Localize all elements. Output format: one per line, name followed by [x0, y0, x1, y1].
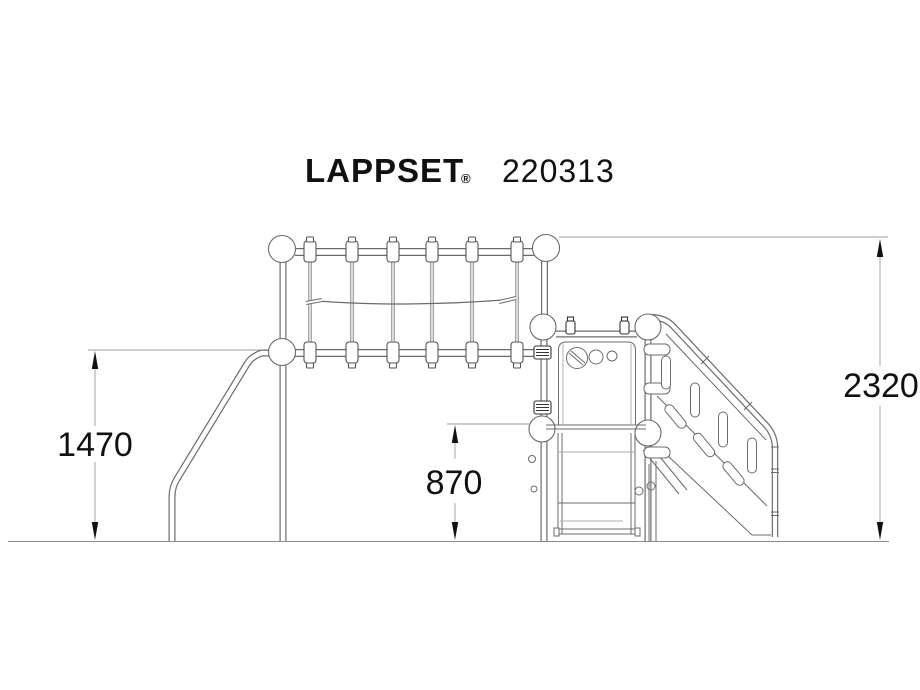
- playground-equipment-elevation-drawing: 1470 870 2320 LAPPSET ® 220313: [0, 0, 920, 690]
- dimension-platform-height: 870: [426, 425, 483, 540]
- dimension-total-height: 2320: [843, 239, 919, 540]
- product-code: 220313: [502, 153, 615, 189]
- arrow-up-icon: [452, 425, 458, 443]
- registered-trademark-symbol: ®: [461, 171, 471, 186]
- arrow-down-icon: [877, 522, 883, 540]
- dimension-label-2320: 2320: [843, 367, 919, 405]
- arrow-down-icon: [92, 522, 98, 540]
- dimension-witness-lines: [88, 237, 888, 524]
- arrow-down-icon: [452, 522, 458, 540]
- dimension-label-1470: 1470: [57, 426, 133, 464]
- technical-drawing-page: 1470 870 2320 LAPPSET ® 220313: [0, 0, 920, 690]
- arrow-up-icon: [92, 351, 98, 369]
- dimension-label-870: 870: [426, 464, 483, 502]
- ramp-hold-slots: [662, 356, 757, 487]
- brand-logo-text: LAPPSET: [305, 152, 464, 189]
- title-block: LAPPSET ® 220313: [305, 152, 615, 189]
- climbing-net-ropes: [306, 256, 517, 352]
- arrow-up-icon: [877, 239, 883, 257]
- stairs-structure: [546, 425, 646, 536]
